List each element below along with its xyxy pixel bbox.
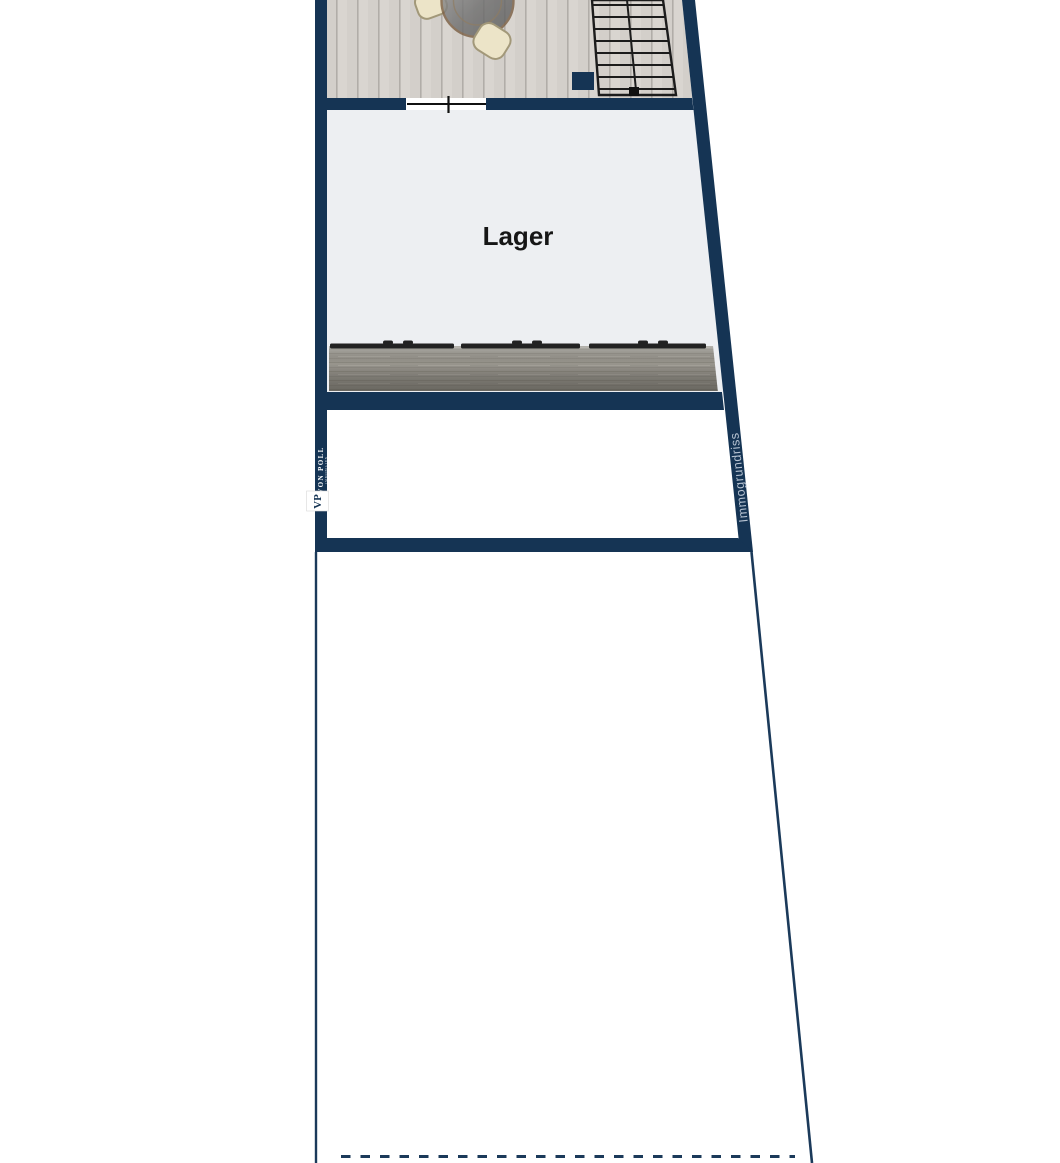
middle-wall (315, 392, 724, 410)
boundary-right-line (752, 552, 813, 1163)
floorplan-svg: Lager VON POLL IMMOBILIEN VP Immogrundri… (0, 0, 1060, 1163)
boundary-left-line (315, 552, 317, 1163)
floorplan-canvas: Lager VON POLL IMMOBILIEN VP Immogrundri… (0, 0, 1060, 1163)
interior-wall (315, 98, 694, 110)
garage-doors (329, 341, 718, 392)
utility-shaft-square (572, 72, 594, 90)
vonpoll-division-text: IMMOBILIEN (324, 456, 328, 483)
lower-room-floor (327, 410, 738, 538)
bottom-wall (315, 538, 753, 552)
vonpoll-monogram-text: VP (312, 494, 324, 509)
lager-room-label: Lager (483, 221, 554, 251)
